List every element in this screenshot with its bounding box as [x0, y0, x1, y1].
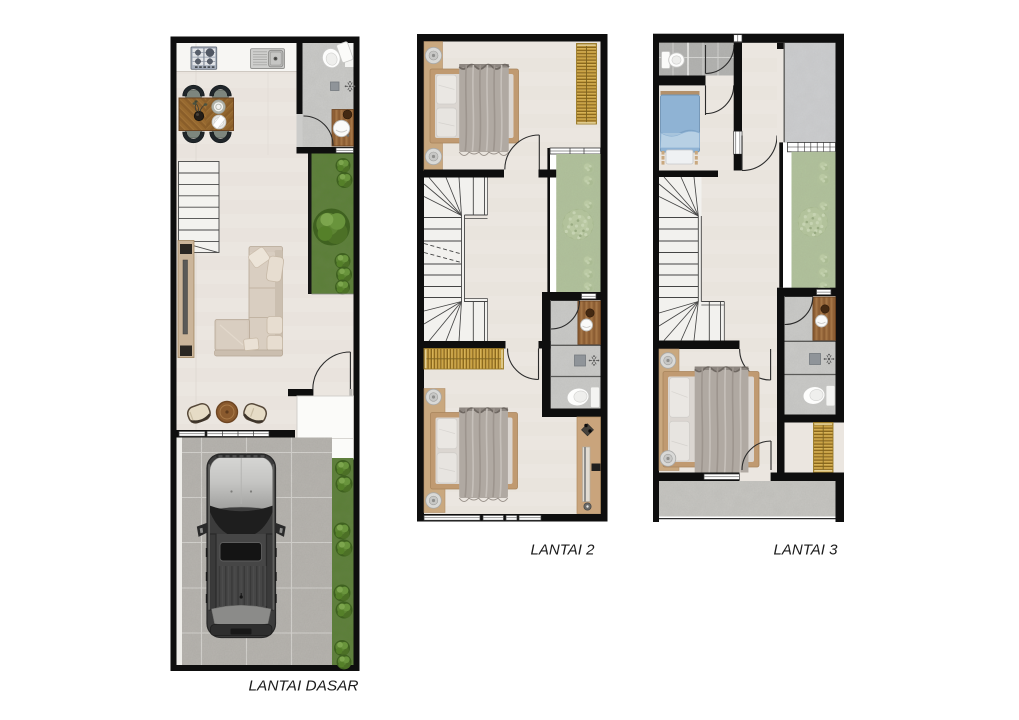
svg-text:LANTAI 2: LANTAI 2 [531, 541, 596, 558]
svg-text:LANTAI DASAR: LANTAI DASAR [249, 678, 359, 695]
svg-text:LANTAI 3: LANTAI 3 [774, 541, 839, 558]
